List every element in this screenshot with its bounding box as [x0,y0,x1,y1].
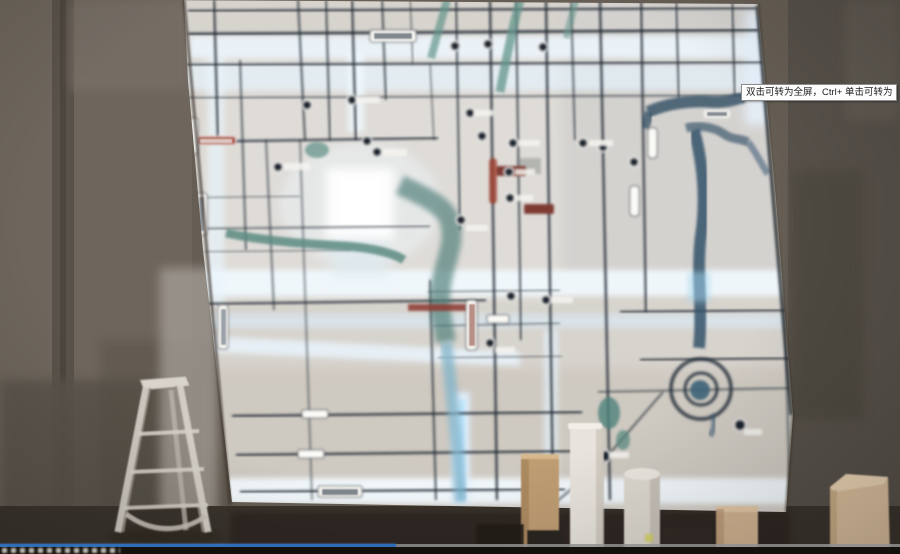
road-capsule [302,410,328,418]
poi-label [744,429,762,435]
poi-label [518,140,540,146]
poi-label [551,297,573,303]
poi-label [284,163,310,170]
road-capsule-v [630,186,639,216]
road-capsule-v [648,128,657,158]
poi-marker [450,41,460,51]
fullscreen-tooltip: 双击可转为全屏，Ctrl+ 单击可转为 [741,84,897,101]
road-capsule [298,450,324,458]
poi-marker [508,138,518,148]
poi-label [383,149,407,156]
poi-marker [483,39,493,49]
poi-marker [456,215,466,225]
poi-marker [538,42,548,52]
poi-label [515,169,535,175]
poi-marker [506,291,516,301]
wall-light-strip [160,268,218,518]
video-frame[interactable]: 双击可转为全屏，Ctrl+ 单击可转为 [0,0,900,554]
poi-marker [505,193,515,203]
poi-marker [578,138,588,148]
river-right-stem [694,130,704,348]
poi-marker [465,108,475,118]
red-pill-site [489,158,497,204]
road-capsule [487,315,509,323]
poi-label [515,195,533,201]
poi-marker [504,167,514,177]
poi-marker [273,162,283,172]
layer-map [178,0,800,516]
poi-label [495,347,515,353]
video-controls-text-smudge [2,548,120,553]
poi-label [466,225,488,231]
poi-marker [362,136,372,146]
poi-label [356,96,380,103]
poi-marker [347,95,357,105]
poi-marker [485,338,495,348]
red-project-label [524,204,554,214]
poi-label [474,110,494,116]
video-controls-strip[interactable] [0,547,900,554]
poi-marker [541,295,551,305]
poi-marker [302,100,312,110]
yellow-note [645,534,653,542]
poi-marker [629,157,639,167]
poi-label [609,452,629,458]
poi-label [589,140,613,146]
poi-marker [477,131,487,141]
poi-marker [372,147,382,157]
glow-band-top [190,36,762,58]
